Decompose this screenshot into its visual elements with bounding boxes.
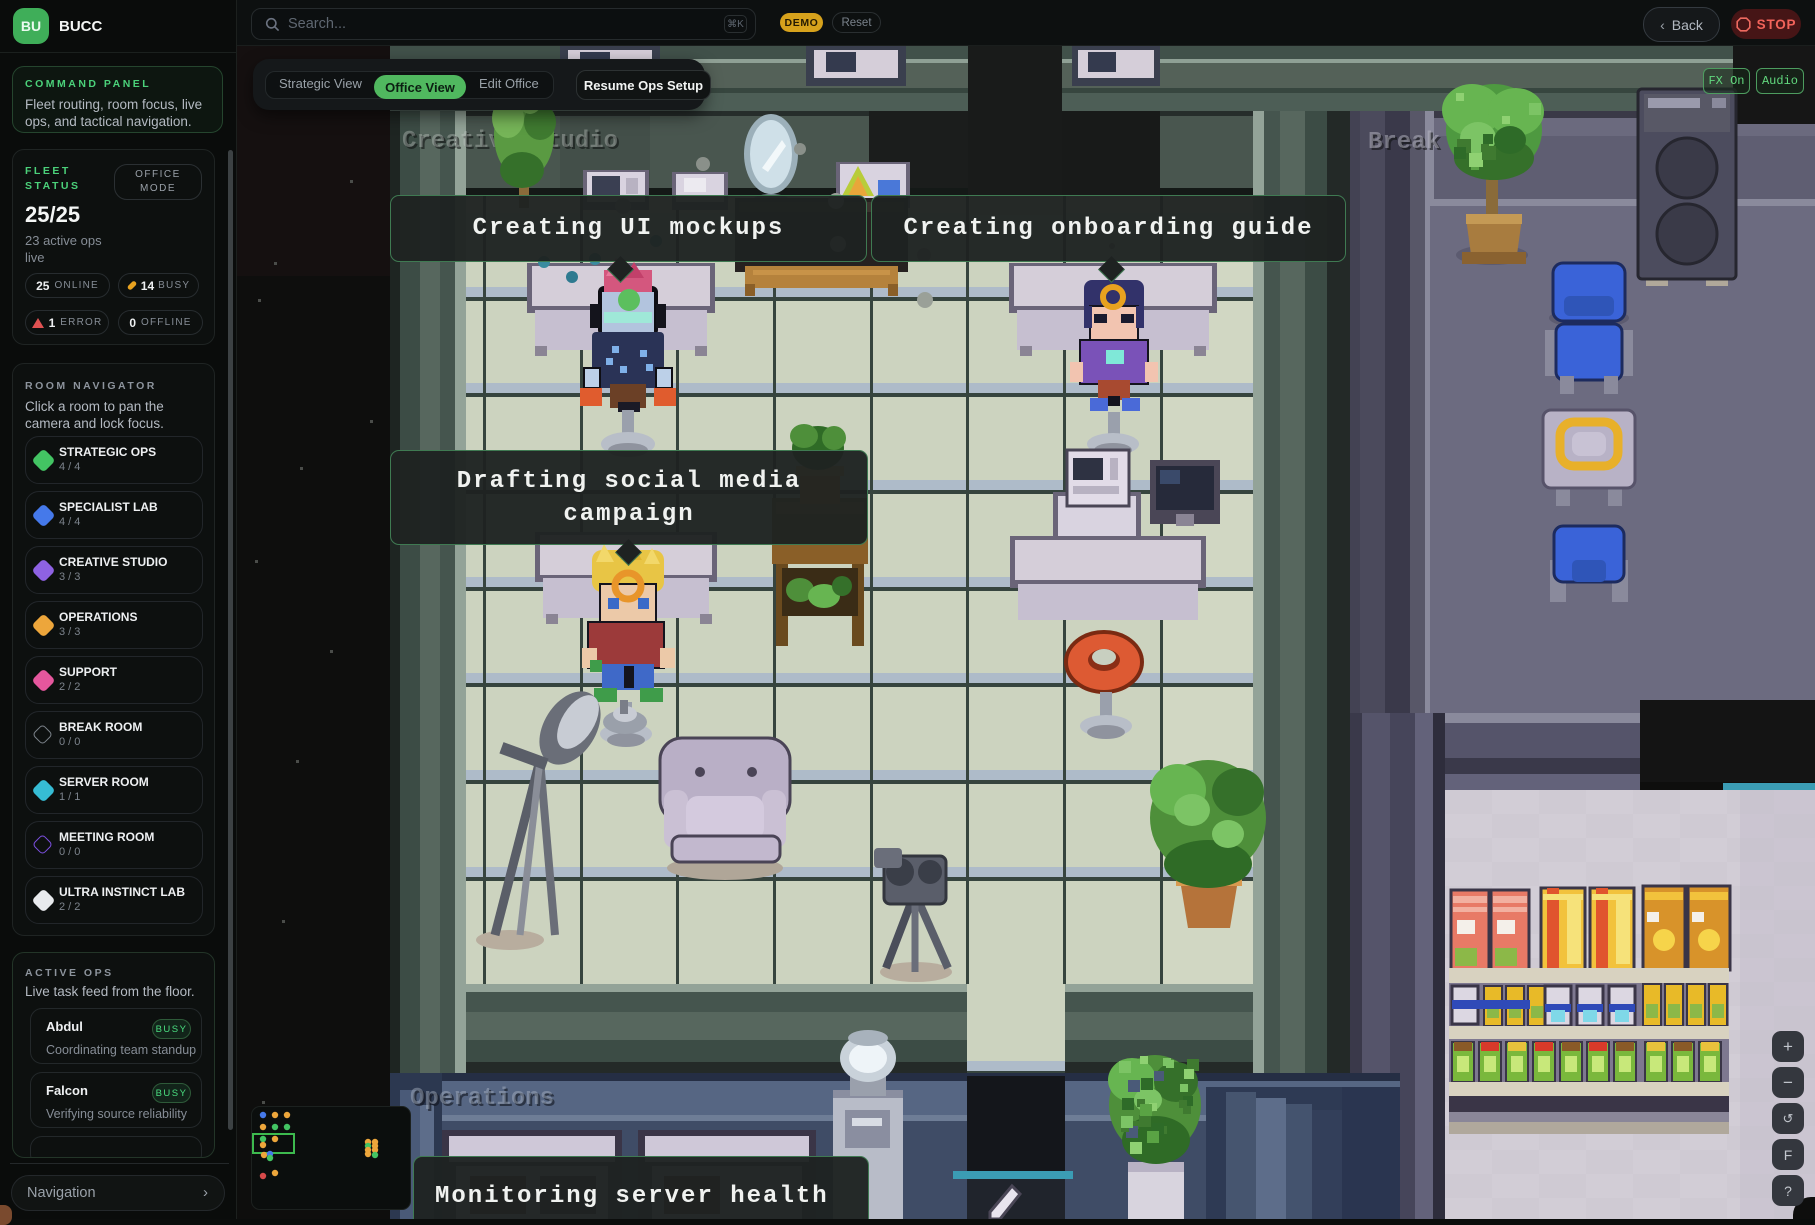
svg-text:Operations: Operations [410, 1085, 554, 1112]
svg-text:Break: Break [1368, 129, 1440, 156]
